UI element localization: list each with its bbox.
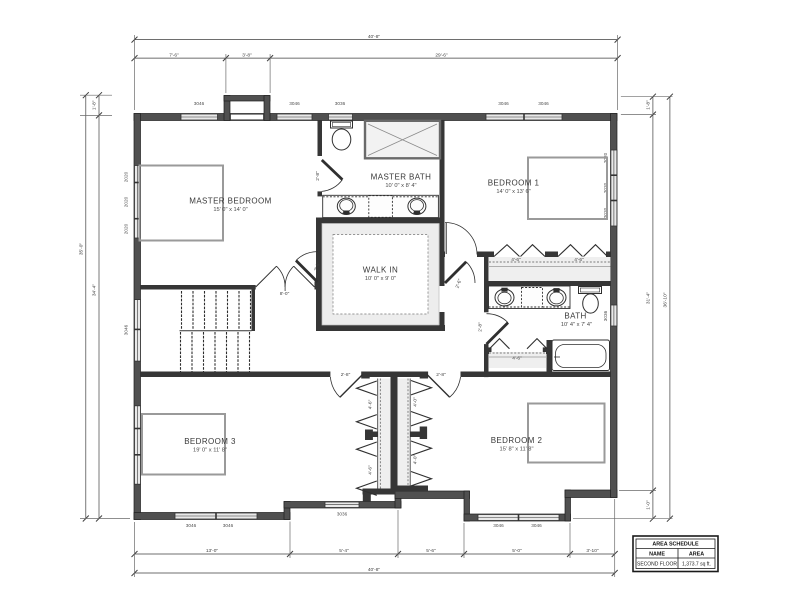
svg-text:BEDROOM 1: BEDROOM 1 <box>488 179 540 188</box>
svg-text:3046: 3046 <box>289 101 300 106</box>
svg-text:3046: 3046 <box>531 523 542 528</box>
svg-text:2'-8": 2'-8" <box>315 171 321 181</box>
svg-text:15' 0" x 14' 0": 15' 0" x 14' 0" <box>213 207 247 213</box>
svg-text:4'-6": 4'-6" <box>368 399 374 409</box>
svg-text:40'-8": 40'-8" <box>368 567 381 573</box>
svg-text:5'-4": 5'-4" <box>339 548 349 554</box>
svg-text:5'-6": 5'-6" <box>426 548 436 554</box>
svg-text:2'-8": 2'-8" <box>478 322 484 332</box>
svg-text:4'-0": 4'-0" <box>413 397 419 407</box>
svg-text:34'-4": 34'-4" <box>92 284 98 297</box>
svg-text:BATH: BATH <box>564 312 586 321</box>
svg-text:4'-0": 4'-0" <box>413 454 419 464</box>
svg-text:SECOND FLOOR: SECOND FLOOR <box>637 561 677 567</box>
svg-text:2020: 2020 <box>124 171 129 182</box>
svg-text:NAME: NAME <box>649 551 665 557</box>
svg-text:3046: 3046 <box>498 101 509 106</box>
svg-text:35'-0": 35'-0" <box>79 243 85 256</box>
svg-text:19' 0" x 11' 8": 19' 0" x 11' 8" <box>193 448 227 454</box>
svg-text:8'-0": 8'-0" <box>280 291 290 297</box>
svg-text:BEDROOM 2: BEDROOM 2 <box>491 436 543 445</box>
svg-text:5'-0": 5'-0" <box>512 548 522 554</box>
svg-text:4'-6": 4'-6" <box>574 257 584 263</box>
svg-text:7'-6": 7'-6" <box>169 52 179 58</box>
svg-text:3036: 3036 <box>335 101 346 106</box>
svg-text:40'-8": 40'-8" <box>368 34 381 40</box>
svg-text:3'-8": 3'-8" <box>242 52 252 58</box>
svg-text:MASTER BATH: MASTER BATH <box>371 173 432 182</box>
svg-text:2'-8": 2'-8" <box>436 372 446 378</box>
svg-text:1,373.7 sq ft.: 1,373.7 sq ft. <box>682 561 711 567</box>
svg-text:10' 0" x 9' 0": 10' 0" x 9' 0" <box>365 276 396 282</box>
svg-text:14' 0" x 13' 6": 14' 0" x 13' 6" <box>496 189 530 195</box>
svg-text:4'-6": 4'-6" <box>368 465 374 475</box>
svg-text:2'-8": 2'-8" <box>341 372 351 378</box>
svg-text:4'-6": 4'-6" <box>511 257 521 263</box>
svg-text:10' 4" x 7' 4": 10' 4" x 7' 4" <box>561 322 592 328</box>
svg-text:3046: 3046 <box>124 324 129 335</box>
svg-text:13'-0": 13'-0" <box>206 548 219 554</box>
svg-text:3046: 3046 <box>194 101 205 106</box>
svg-text:15' 8" x 11' 8": 15' 8" x 11' 8" <box>500 447 534 453</box>
svg-text:3046: 3046 <box>186 523 197 528</box>
svg-text:1'-0": 1'-0" <box>646 500 652 510</box>
svg-text:10' 0" x 8' 4": 10' 0" x 8' 4" <box>385 183 416 189</box>
svg-text:1'-8": 1'-8" <box>92 100 98 110</box>
svg-text:AREA: AREA <box>689 551 704 557</box>
svg-text:2020: 2020 <box>124 223 129 234</box>
svg-text:AREA SCHEDULE: AREA SCHEDULE <box>652 542 699 548</box>
svg-text:3046: 3046 <box>538 101 549 106</box>
svg-text:3046: 3046 <box>223 523 234 528</box>
svg-text:4'-6": 4'-6" <box>512 356 522 362</box>
svg-text:BEDROOM 3: BEDROOM 3 <box>184 437 236 446</box>
svg-text:36'-10": 36'-10" <box>663 292 669 307</box>
svg-text:31'-4": 31'-4" <box>646 292 652 305</box>
svg-text:29'-6": 29'-6" <box>435 52 448 58</box>
svg-text:3036: 3036 <box>603 310 608 321</box>
svg-text:2020: 2020 <box>124 196 129 207</box>
svg-text:WALK IN: WALK IN <box>363 266 398 275</box>
svg-text:3046: 3046 <box>493 523 504 528</box>
svg-text:1'-8": 1'-8" <box>646 100 652 110</box>
svg-text:3'-10": 3'-10" <box>586 548 599 554</box>
svg-text:3036: 3036 <box>337 512 348 517</box>
svg-text:MASTER BEDROOM: MASTER BEDROOM <box>189 197 272 206</box>
